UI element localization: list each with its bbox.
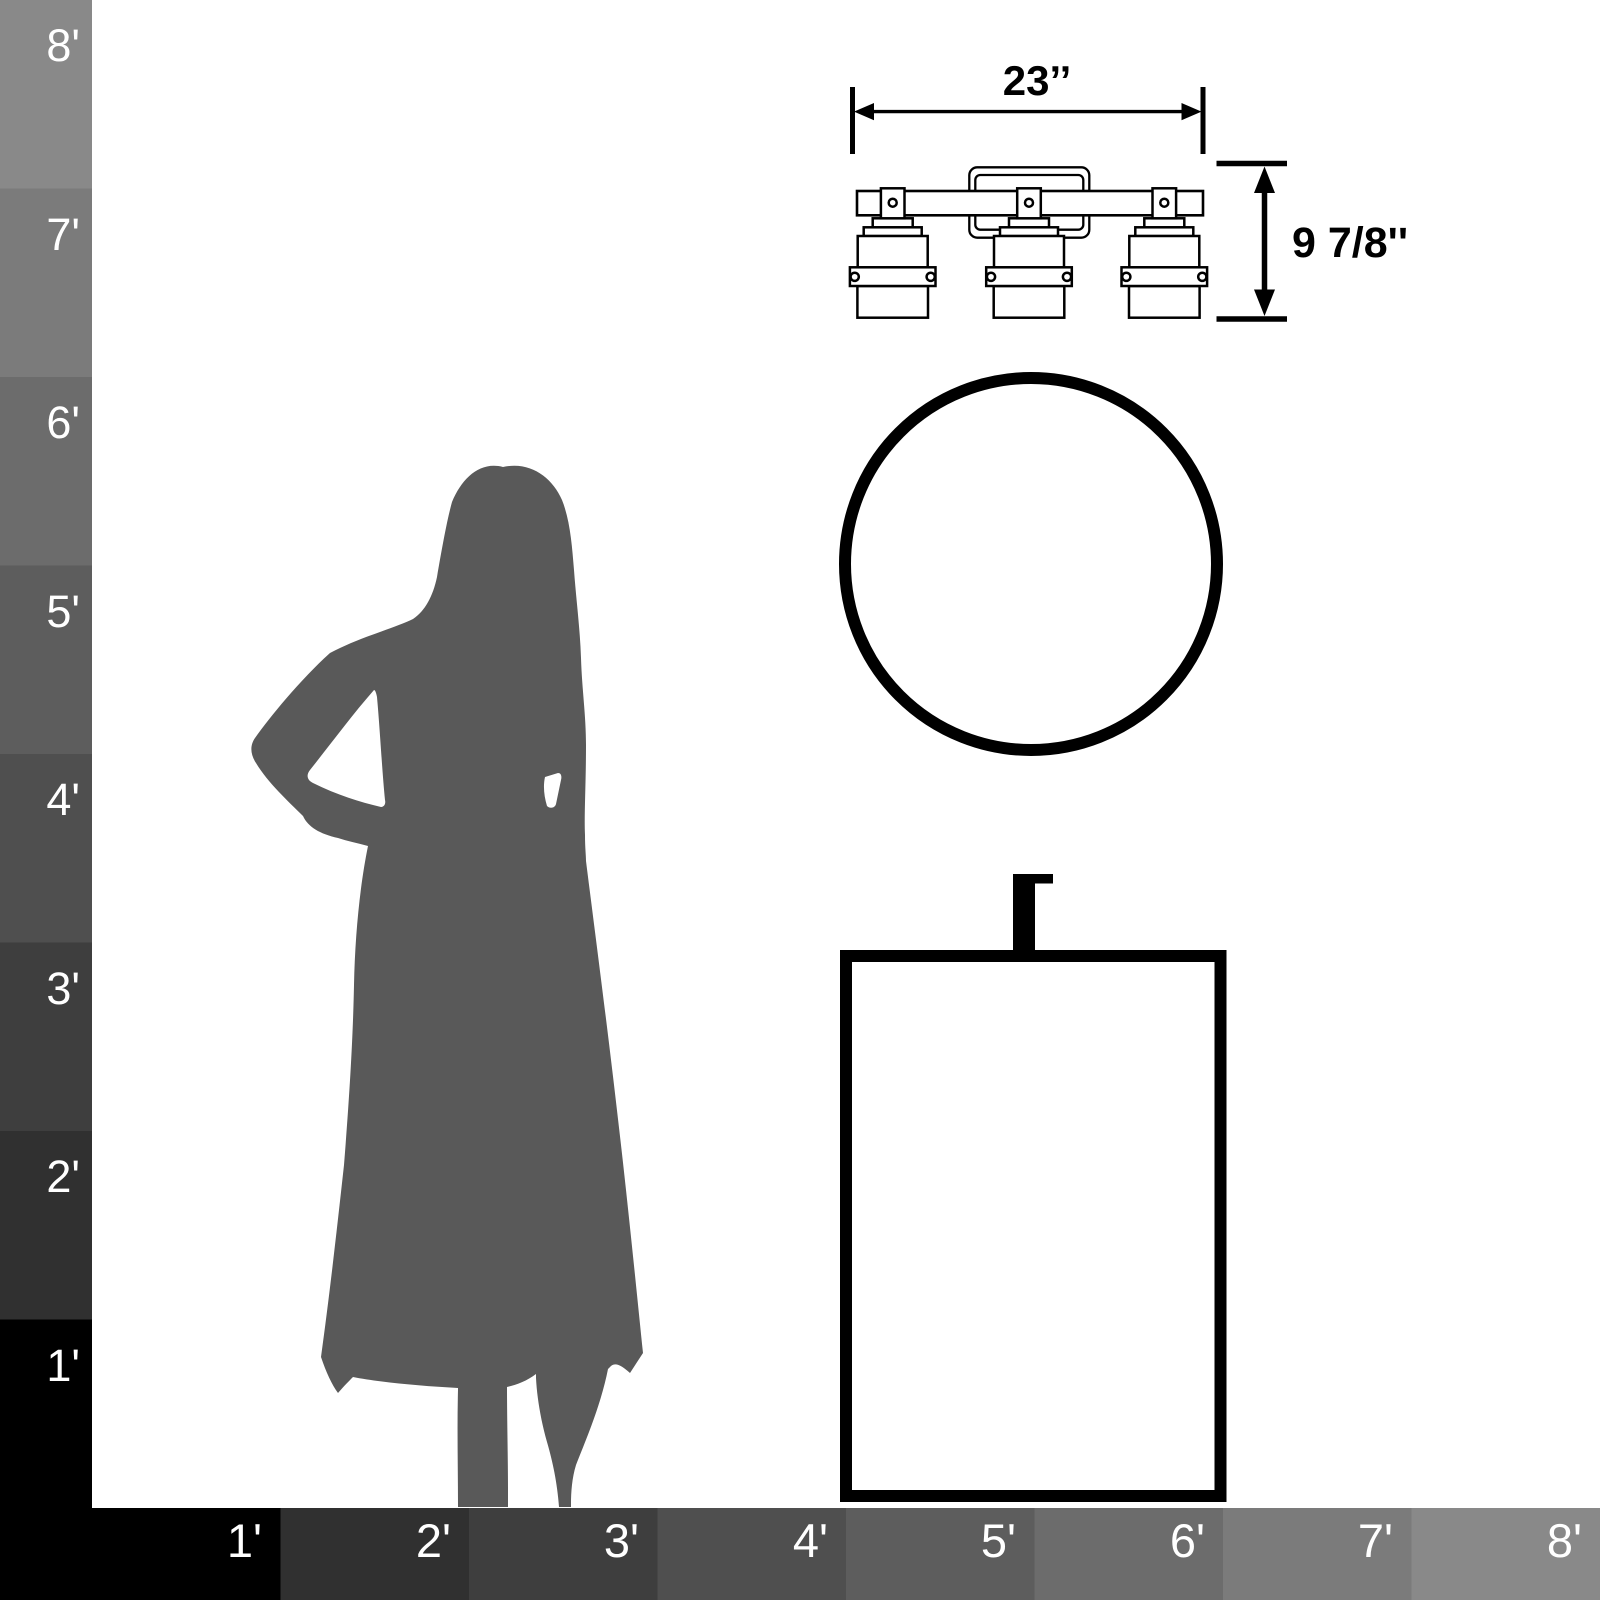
horizontal-ruler-label-2ft: 2': [416, 1514, 451, 1567]
horizontal-ruler-label-4ft: 4': [793, 1514, 828, 1567]
horizontal-ruler-label-3ft: 3': [604, 1514, 639, 1567]
width-dimension-label: 23’’: [1003, 57, 1072, 104]
vertical-ruler: 8' 7' 6' 5' 4' 3' 2' 1': [0, 0, 92, 1508]
horizontal-ruler-label-7ft: 7': [1358, 1514, 1393, 1567]
horizontal-ruler-label-5ft: 5': [981, 1514, 1016, 1567]
vertical-ruler-label-6ft: 6': [46, 397, 80, 448]
height-dimension-label: 9 7/8'': [1292, 219, 1408, 267]
vertical-ruler-label-2ft: 2': [46, 1151, 80, 1202]
mirror-drawing: [845, 378, 1217, 750]
ruler-corner-block: [0, 1508, 92, 1600]
horizontal-ruler-label-8ft: 8': [1547, 1514, 1582, 1567]
vertical-ruler-label-4ft: 4': [46, 774, 80, 825]
horizontal-ruler-label-1ft: 1': [227, 1514, 262, 1567]
vertical-ruler-label-7ft: 7': [46, 209, 80, 260]
vertical-ruler-label-5ft: 5': [46, 586, 80, 637]
horizontal-ruler-label-6ft: 6': [1170, 1514, 1205, 1567]
scale-reference-diagram: 8' 7' 6' 5' 4' 3' 2' 1' 1' 2' 3' 4' 5' 6…: [0, 0, 1600, 1600]
vertical-ruler-label-3ft: 3': [46, 963, 80, 1014]
vanity-cabinet-drawing: [846, 956, 1221, 1496]
horizontal-ruler: 1' 2' 3' 4' 5' 6' 7' 8': [0, 1508, 1600, 1600]
vertical-ruler-label-1ft: 1': [46, 1340, 80, 1391]
vertical-ruler-label-8ft: 8': [46, 20, 80, 71]
